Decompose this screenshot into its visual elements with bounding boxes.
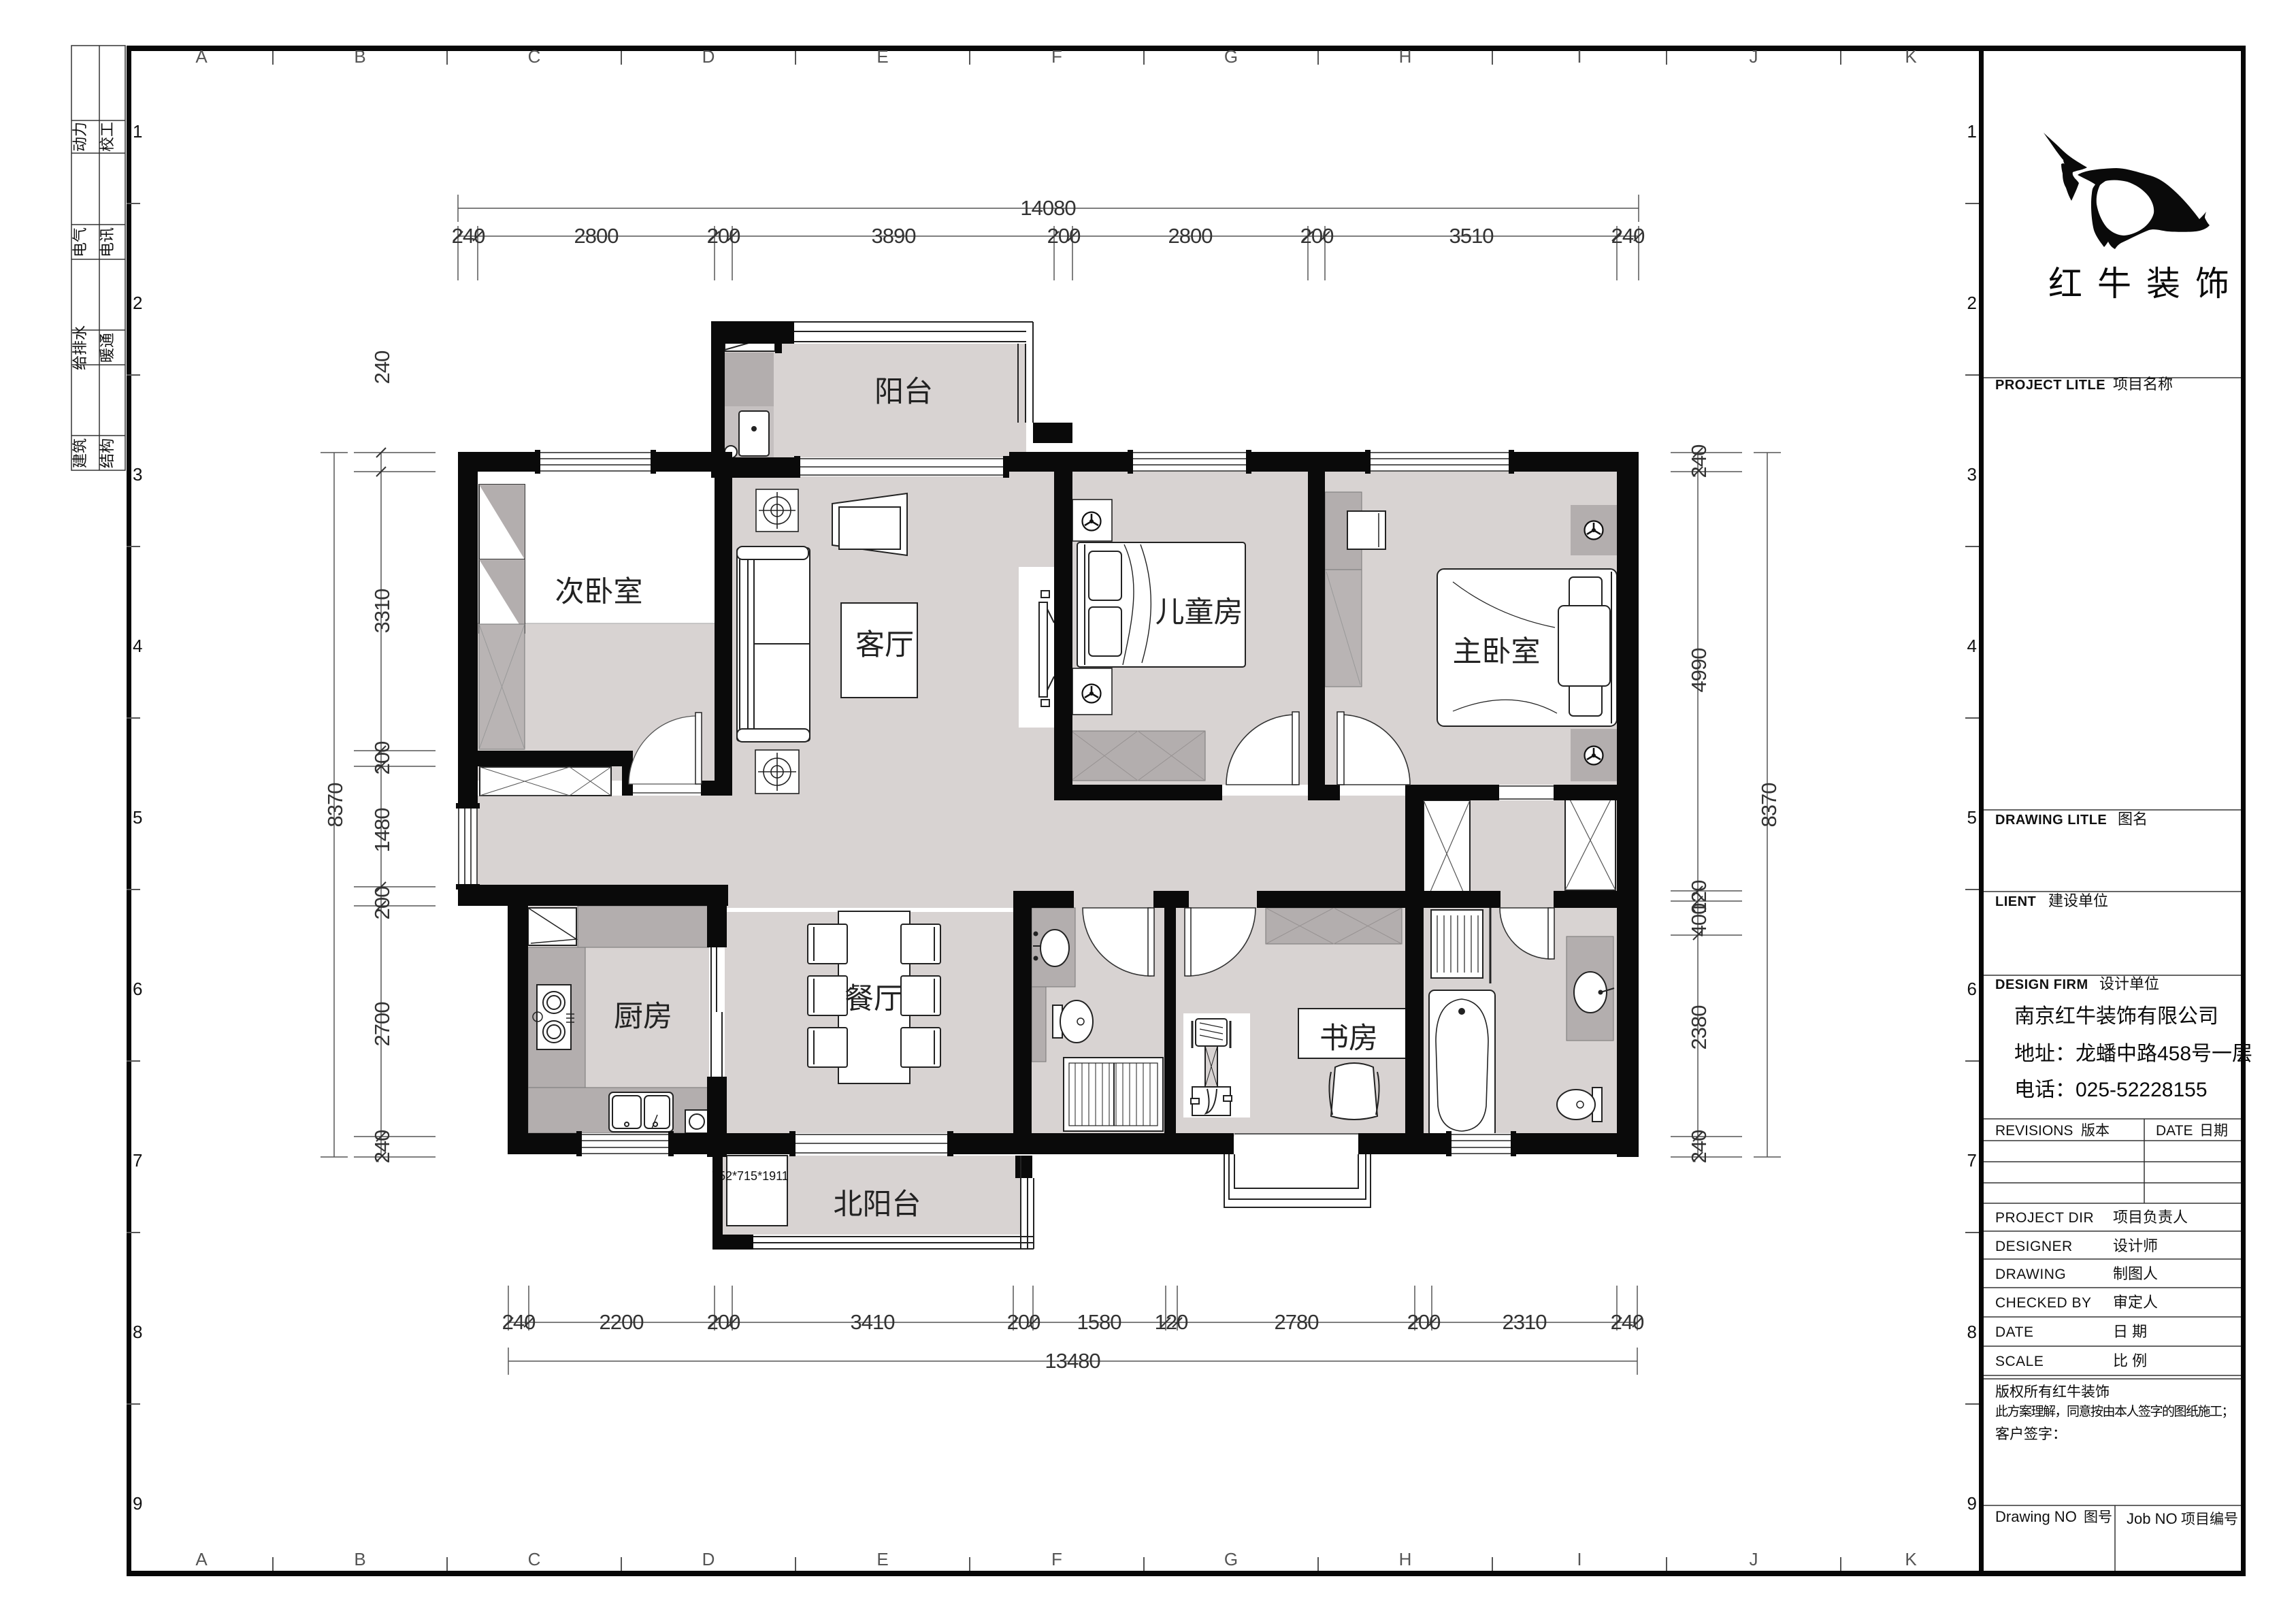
svg-text:200: 200	[370, 741, 394, 774]
svg-text:电讯: 电讯	[99, 227, 116, 257]
svg-text:8: 8	[133, 1322, 142, 1342]
svg-text:2800: 2800	[1168, 224, 1213, 248]
svg-text:2700: 2700	[370, 1002, 394, 1047]
svg-text:客户签字：: 客户签字：	[1995, 1426, 2067, 1442]
svg-text:120: 120	[1155, 1310, 1188, 1334]
svg-text:DRAWING: DRAWING	[1995, 1267, 2066, 1282]
svg-text:项目名称: 项目名称	[2113, 376, 2173, 393]
svg-text:Drawing NO: Drawing NO	[1995, 1508, 2077, 1525]
svg-text:版权所有红牛装饰: 版权所有红牛装饰	[1995, 1384, 2110, 1400]
svg-text:客厅: 客厅	[855, 629, 914, 662]
svg-text:7: 7	[133, 1150, 142, 1171]
svg-text:2200: 2200	[600, 1310, 644, 1334]
svg-text:主卧室: 主卧室	[1453, 636, 1541, 668]
svg-text:2: 2	[1967, 293, 1977, 313]
svg-text:200: 200	[1047, 224, 1081, 248]
svg-text:E: E	[876, 1549, 888, 1569]
svg-text:2800: 2800	[574, 224, 619, 248]
svg-text:CHECKED BY: CHECKED BY	[1995, 1295, 2092, 1311]
svg-text:红牛装饰: 红牛装饰	[2048, 265, 2244, 303]
svg-text:240: 240	[502, 1310, 536, 1334]
svg-text:餐厅: 餐厅	[844, 983, 903, 1015]
svg-text:3510: 3510	[1449, 224, 1494, 248]
svg-text:A: A	[195, 1549, 208, 1569]
svg-text:240: 240	[1687, 444, 1711, 478]
svg-text:8370: 8370	[1757, 783, 1781, 828]
svg-text:项目负责人: 项目负责人	[2113, 1209, 2188, 1226]
svg-text:DATE: DATE	[1995, 1324, 2033, 1340]
svg-text:儿童房: 儿童房	[1155, 596, 1243, 629]
svg-text:6: 6	[133, 979, 142, 999]
svg-text:电话：025-52228155: 电话：025-52228155	[2014, 1079, 2208, 1101]
svg-text:版本: 版本	[2081, 1123, 2110, 1139]
svg-text:4: 4	[1967, 636, 1977, 656]
svg-text:C: C	[528, 1549, 541, 1569]
svg-text:日期: 日期	[2199, 1123, 2228, 1139]
svg-text:设计师: 设计师	[2113, 1237, 2158, 1254]
svg-text:C: C	[528, 46, 541, 67]
svg-text:项目编号: 项目编号	[2181, 1512, 2238, 1527]
svg-text:厨房: 厨房	[614, 1000, 672, 1033]
svg-text:图名: 图名	[2118, 811, 2148, 828]
svg-text:200: 200	[1407, 1310, 1441, 1334]
svg-text:K: K	[1905, 1549, 1917, 1569]
svg-text:G: G	[1224, 1549, 1238, 1569]
svg-text:7: 7	[1967, 1150, 1977, 1171]
svg-text:240: 240	[1611, 1310, 1644, 1334]
svg-text:9: 9	[133, 1493, 142, 1514]
svg-text:K: K	[1905, 46, 1917, 67]
svg-text:J: J	[1750, 46, 1758, 67]
svg-text:13480: 13480	[1045, 1349, 1100, 1373]
svg-text:南京红牛装饰有限公司: 南京红牛装饰有限公司	[2014, 1005, 2218, 1028]
svg-text:4: 4	[133, 636, 142, 656]
svg-text:A: A	[195, 46, 208, 67]
svg-text:给排水: 给排水	[71, 325, 88, 370]
svg-text:I: I	[1577, 1549, 1581, 1569]
svg-text:比 例: 比 例	[2113, 1352, 2147, 1369]
svg-text:DATE: DATE	[2156, 1123, 2193, 1139]
svg-text:图号: 图号	[2084, 1510, 2112, 1525]
svg-text:设计单位: 设计单位	[2099, 975, 2159, 992]
svg-text:H: H	[1399, 46, 1412, 67]
svg-text:8: 8	[1967, 1322, 1977, 1342]
svg-text:B: B	[354, 1549, 365, 1569]
svg-text:电气: 电气	[71, 227, 88, 257]
svg-text:暖通: 暖通	[99, 333, 116, 363]
svg-text:3310: 3310	[370, 589, 394, 634]
svg-text:8370: 8370	[323, 783, 347, 828]
svg-text:6: 6	[1967, 979, 1977, 999]
svg-text:书房: 书房	[1319, 1022, 1378, 1055]
svg-text:H: H	[1399, 1549, 1412, 1569]
svg-text:2310: 2310	[1503, 1310, 1547, 1334]
svg-text:DRAWING LITLE: DRAWING LITLE	[1995, 813, 2107, 828]
svg-text:校工: 校工	[99, 122, 116, 152]
svg-text:北阳台: 北阳台	[834, 1188, 921, 1221]
svg-text:PROJECT LITLE: PROJECT LITLE	[1995, 378, 2105, 393]
svg-text:200: 200	[1007, 1310, 1040, 1334]
svg-text:制图人: 制图人	[2113, 1265, 2158, 1282]
svg-text:PROJECT DIR: PROJECT DIR	[1995, 1210, 2094, 1226]
svg-text:200: 200	[1300, 224, 1334, 248]
svg-text:日 期: 日 期	[2113, 1323, 2147, 1340]
svg-text:建筑: 建筑	[71, 438, 88, 468]
svg-text:审定人: 审定人	[2113, 1294, 2158, 1311]
svg-text:1: 1	[133, 121, 142, 142]
svg-text:240: 240	[370, 350, 394, 384]
svg-text:Job NO: Job NO	[2127, 1510, 2178, 1527]
svg-text:3890: 3890	[872, 224, 917, 248]
svg-text:此方案理解，同意按由本人签字的图纸施工；: 此方案理解，同意按由本人签字的图纸施工；	[1995, 1404, 2233, 1419]
svg-text:次卧室: 次卧室	[555, 576, 643, 608]
svg-text:200: 200	[707, 224, 740, 248]
svg-text:I: I	[1577, 46, 1581, 67]
svg-text:G: G	[1224, 46, 1238, 67]
svg-text:2: 2	[133, 293, 142, 313]
svg-text:240: 240	[452, 224, 485, 248]
svg-text:3410: 3410	[851, 1310, 896, 1334]
svg-text:F: F	[1051, 46, 1062, 67]
svg-text:DESIGN FIRM: DESIGN FIRM	[1995, 977, 2088, 992]
svg-text:200: 200	[707, 1310, 740, 1334]
svg-text:5: 5	[1967, 807, 1977, 828]
svg-text:F: F	[1051, 1549, 1062, 1569]
svg-text:B: B	[354, 46, 365, 67]
svg-text:D: D	[702, 46, 715, 67]
svg-text:200: 200	[370, 886, 394, 919]
svg-text:3: 3	[133, 464, 142, 485]
svg-text:D: D	[702, 1549, 715, 1569]
svg-text:J: J	[1750, 1549, 1758, 1569]
svg-text:1: 1	[1967, 121, 1977, 142]
svg-text:REVISIONS: REVISIONS	[1995, 1123, 2073, 1139]
svg-text:建设单位: 建设单位	[2048, 892, 2108, 909]
svg-text:SCALE: SCALE	[1995, 1354, 2044, 1369]
svg-text:2380: 2380	[1687, 1005, 1711, 1050]
svg-text:2780: 2780	[1275, 1310, 1319, 1334]
svg-text:14080: 14080	[1020, 196, 1076, 220]
svg-text:752*715*1911: 752*715*1911	[712, 1169, 789, 1183]
svg-text:9: 9	[1967, 1493, 1977, 1514]
svg-text:地址：龙蟠中路458号一层: 地址：龙蟠中路458号一层	[2014, 1043, 2252, 1065]
svg-text:1580: 1580	[1077, 1310, 1122, 1334]
svg-text:1480: 1480	[370, 808, 394, 853]
svg-text:E: E	[876, 46, 888, 67]
svg-text:LIENT: LIENT	[1995, 894, 2036, 909]
svg-text:5: 5	[133, 807, 142, 828]
svg-text:4990: 4990	[1687, 648, 1711, 693]
svg-text:DESIGNER: DESIGNER	[1995, 1239, 2073, 1254]
svg-text:400: 400	[1687, 903, 1711, 936]
svg-text:动力: 动力	[71, 122, 88, 152]
svg-text:结构: 结构	[99, 438, 116, 468]
svg-text:3: 3	[1967, 464, 1977, 485]
svg-text:阳台: 阳台	[874, 376, 933, 408]
